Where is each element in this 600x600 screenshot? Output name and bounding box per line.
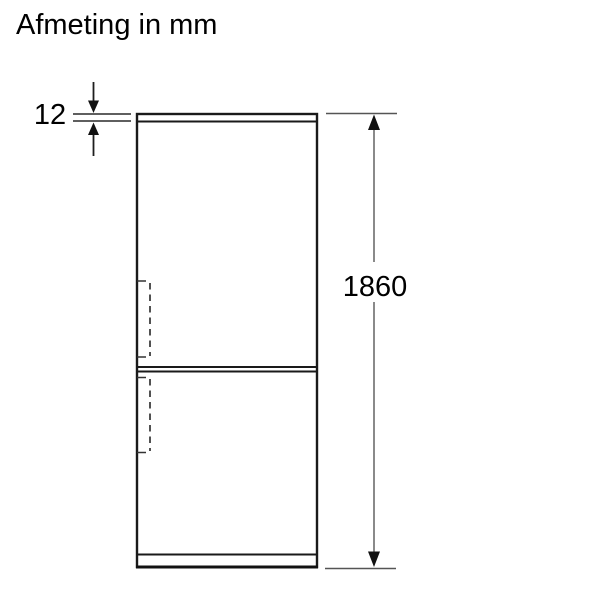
dimension-top-panel: 12 — [34, 82, 131, 156]
dimension-diagram-page: Afmeting in mm 12 — [0, 0, 600, 600]
fridge-cabinet-outline — [137, 114, 317, 567]
dimension-label-12: 12 — [34, 99, 66, 131]
dimension-diagram: Afmeting in mm 12 — [0, 0, 600, 600]
dim-1860-arrow-bottom-head — [368, 552, 380, 568]
dimension-label-1860: 1860 — [343, 271, 408, 303]
fridge-outline-group — [136, 114, 318, 567]
dim-1860-arrow-top-head — [368, 115, 380, 131]
diagram-title: Afmeting in mm — [16, 9, 217, 41]
dim-12-arrow-up-head — [88, 123, 99, 136]
dim-12-arrow-down-head — [88, 101, 99, 114]
dimension-overall-height: 1860 — [325, 114, 407, 569]
